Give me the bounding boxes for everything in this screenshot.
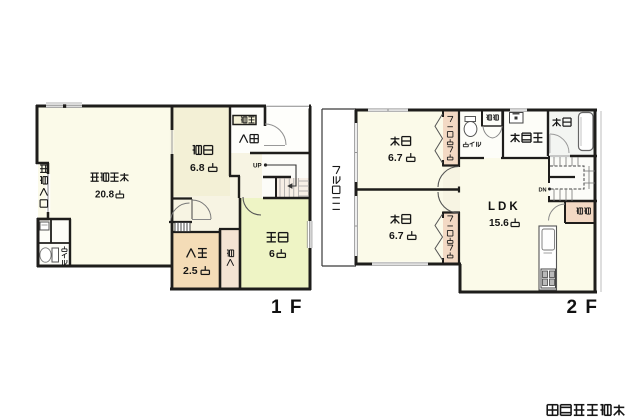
svg-text:6.8: 6.8: [190, 162, 205, 174]
svg-text:6.7: 6.7: [389, 230, 404, 242]
svg-text:2 F: 2 F: [567, 297, 599, 318]
svg-text:15.6: 15.6: [489, 218, 509, 229]
svg-text:6.7: 6.7: [388, 152, 403, 164]
svg-text:DN: DN: [539, 188, 547, 194]
svg-text:6: 6: [269, 248, 275, 260]
svg-text:UP: UP: [253, 163, 262, 170]
svg-text:1 F: 1 F: [271, 297, 303, 318]
svg-text:20.8: 20.8: [95, 190, 115, 201]
svg-text:2.5: 2.5: [183, 265, 198, 277]
svg-text:LDK: LDK: [488, 201, 521, 213]
